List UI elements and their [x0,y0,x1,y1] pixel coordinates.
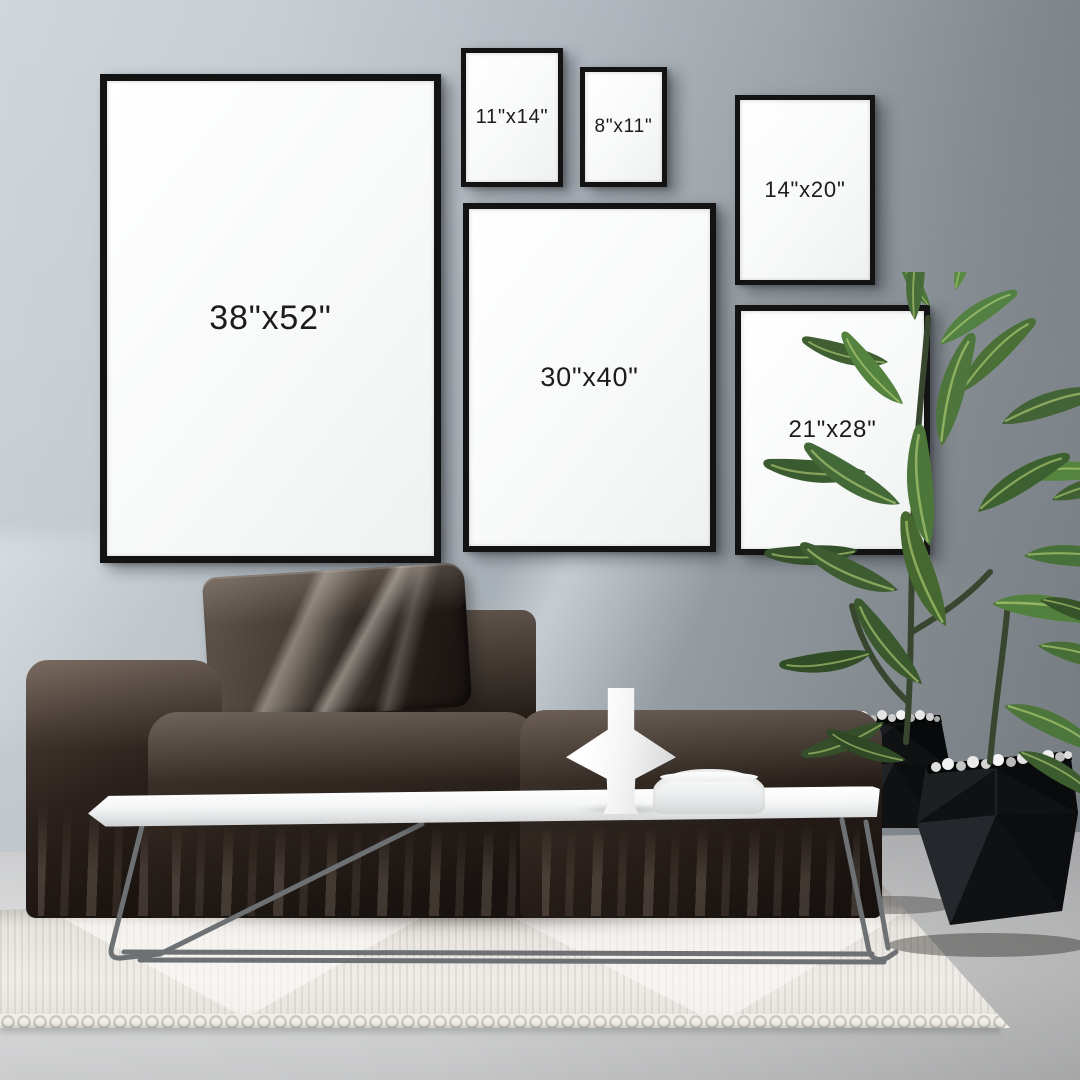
frame-14x20: 14"x20" [735,95,875,285]
frame-30x40: 30"x40" [463,203,716,552]
frame-size-label: 11"x14" [476,106,549,129]
living-room-scene: 38"x52" 11"x14" 8"x11" 14"x20" 30"x40" 2… [0,0,1080,1080]
pillow-light-streaks [202,562,472,722]
frame-11x14: 11"x14" [461,48,563,187]
frame-size-label: 8"x11" [594,116,652,138]
plant-leaves [761,272,1080,809]
table-wire-legs [0,800,1080,1040]
white-bowl [653,769,765,814]
frame-size-label: 30"x40" [540,362,638,393]
frame-8x11: 8"x11" [580,67,667,187]
frame-38x52: 38"x52" [100,74,441,563]
sofa-pillow [202,562,472,722]
frame-size-label: 14"x20" [764,177,845,203]
frame-size-label: 38"x52" [209,299,331,338]
